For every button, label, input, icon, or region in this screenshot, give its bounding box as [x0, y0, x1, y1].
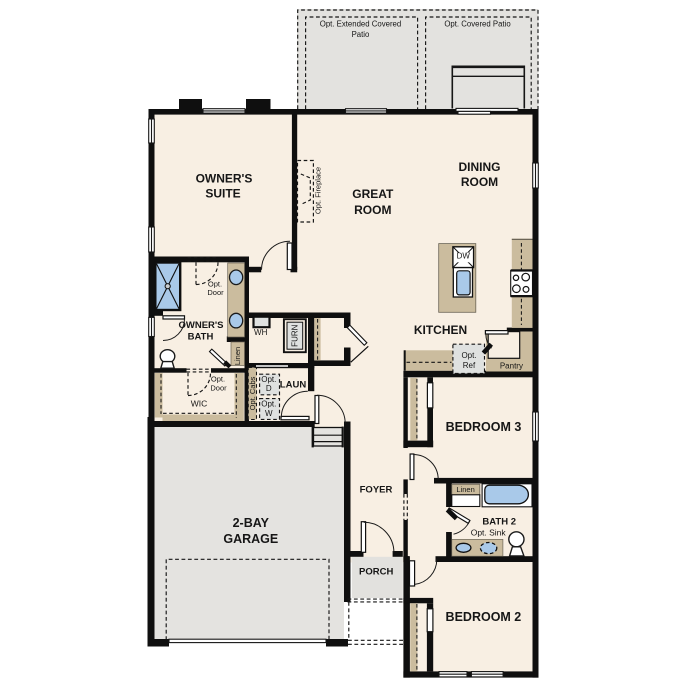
- svg-text:ROOM: ROOM: [461, 175, 498, 189]
- svg-text:DW: DW: [457, 252, 471, 261]
- svg-text:Opt. Sink: Opt. Sink: [471, 528, 507, 538]
- svg-text:Opt.: Opt.: [261, 375, 276, 384]
- svg-text:Opt. Cabs: Opt. Cabs: [248, 376, 257, 410]
- svg-text:GREAT: GREAT: [352, 187, 394, 201]
- svg-text:FURN: FURN: [290, 324, 299, 346]
- svg-text:D: D: [266, 384, 272, 393]
- svg-text:SUITE: SUITE: [205, 187, 240, 201]
- svg-text:DINING: DINING: [459, 160, 501, 174]
- svg-text:OWNER'S: OWNER'S: [196, 171, 253, 185]
- svg-text:FOYER: FOYER: [360, 484, 393, 495]
- svg-text:BATH 2: BATH 2: [482, 517, 516, 528]
- svg-text:WIC: WIC: [191, 399, 208, 409]
- svg-text:Ref: Ref: [463, 361, 476, 370]
- svg-text:KITCHEN: KITCHEN: [414, 323, 467, 337]
- svg-text:Door: Door: [210, 384, 227, 393]
- svg-text:Opt. Fireplace: Opt. Fireplace: [313, 167, 322, 214]
- svg-text:Linen: Linen: [233, 347, 242, 365]
- svg-text:Opt.: Opt.: [211, 374, 225, 383]
- svg-text:Opt.: Opt.: [461, 351, 476, 360]
- svg-text:Opt. Extended Covered: Opt. Extended Covered: [320, 20, 401, 29]
- svg-text:LAUN: LAUN: [280, 379, 307, 390]
- svg-text:W: W: [265, 409, 273, 418]
- svg-text:BEDROOM 2: BEDROOM 2: [446, 610, 522, 624]
- svg-text:PORCH: PORCH: [359, 567, 393, 578]
- svg-text:Patio: Patio: [352, 30, 370, 39]
- svg-text:Door: Door: [207, 288, 224, 297]
- svg-text:ROOM: ROOM: [354, 203, 391, 217]
- svg-text:Opt. Covered Patio: Opt. Covered Patio: [444, 20, 511, 29]
- svg-text:WH: WH: [254, 328, 268, 337]
- svg-text:Opt.: Opt.: [261, 400, 276, 409]
- svg-text:Pantry: Pantry: [500, 362, 523, 371]
- svg-text:2-BAY: 2-BAY: [233, 516, 270, 530]
- svg-text:BEDROOM 3: BEDROOM 3: [446, 420, 522, 434]
- svg-text:OWNER'S: OWNER'S: [178, 320, 223, 331]
- svg-text:BATH: BATH: [188, 331, 214, 342]
- svg-text:Linen: Linen: [456, 485, 474, 494]
- svg-text:GARAGE: GARAGE: [223, 532, 278, 546]
